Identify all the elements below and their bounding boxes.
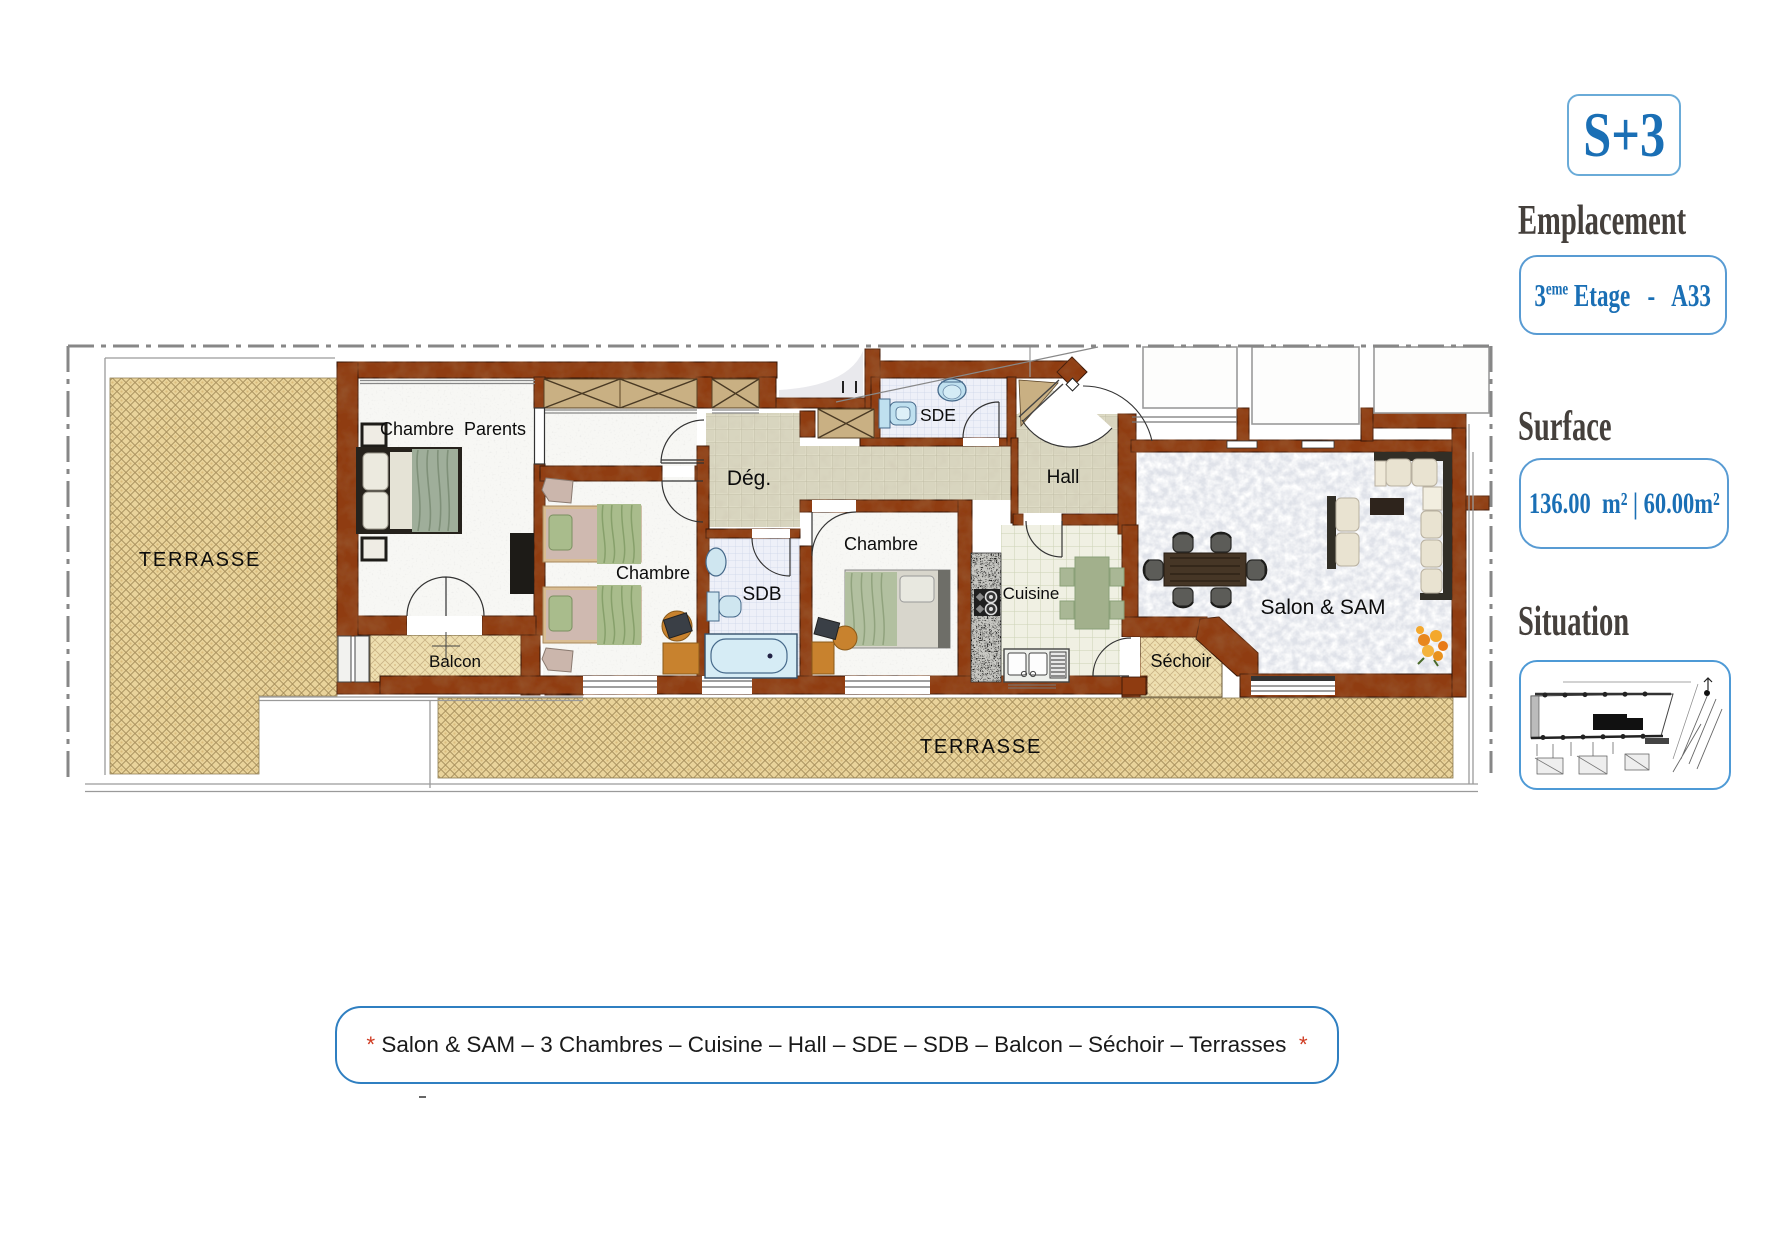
svg-text:Chambre: Chambre [616, 563, 690, 583]
svg-text:SDB: SDB [742, 584, 781, 605]
svg-text:Cuisine: Cuisine [1003, 584, 1060, 603]
svg-text:SDE: SDE [920, 405, 956, 425]
svg-text:Balcon: Balcon [429, 652, 481, 671]
svg-text:Hall: Hall [1047, 467, 1080, 488]
svg-text:Chambre Parents: Chambre Parents [380, 419, 526, 439]
svg-text:Dég.: Dég. [727, 467, 771, 490]
svg-text:TERRASSE: TERRASSE [139, 549, 261, 571]
svg-text:TERRASSE: TERRASSE [920, 736, 1042, 758]
svg-text:Chambre: Chambre [844, 534, 918, 554]
svg-text:Séchoir: Séchoir [1150, 651, 1211, 671]
svg-text:Salon & SAM: Salon & SAM [1261, 596, 1386, 619]
